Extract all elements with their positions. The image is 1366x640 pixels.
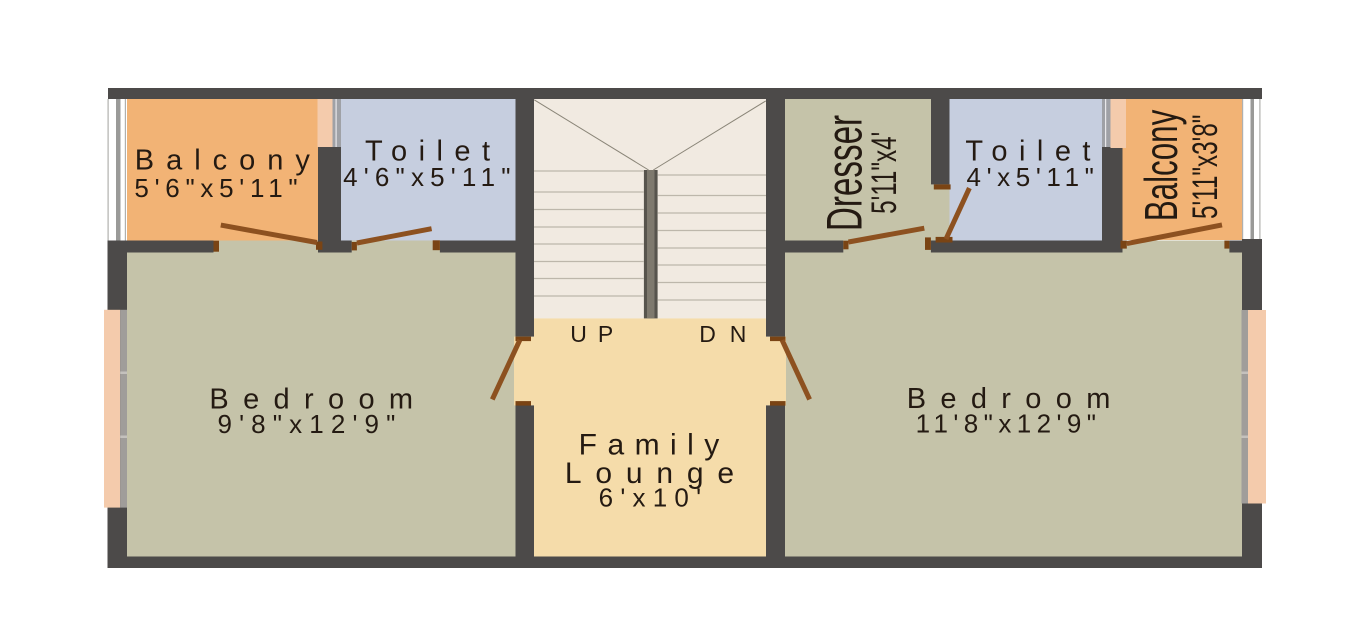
svg-text:5'11"x4': 5'11"x4' [866, 132, 904, 214]
svg-text:DN: DN [699, 321, 760, 347]
svg-text:11'8"x12'9": 11'8"x12'9" [916, 408, 1102, 438]
svg-text:4'x5'11": 4'x5'11" [966, 162, 1099, 192]
svg-text:5'6"x5'11": 5'6"x5'11" [134, 173, 303, 203]
svg-text:Dresser: Dresser [817, 115, 872, 231]
svg-text:9'8"x12'9": 9'8"x12'9" [218, 409, 403, 439]
svg-text:Balcony: Balcony [1136, 109, 1187, 221]
svg-text:Balcony: Balcony [135, 145, 322, 177]
svg-text:4'6"x5'11": 4'6"x5'11" [343, 162, 516, 192]
svg-text:5'11"x3'8": 5'11"x3'8" [1187, 115, 1225, 219]
svg-text:6'x10': 6'x10' [599, 482, 709, 512]
svg-text:UP: UP [570, 321, 624, 347]
